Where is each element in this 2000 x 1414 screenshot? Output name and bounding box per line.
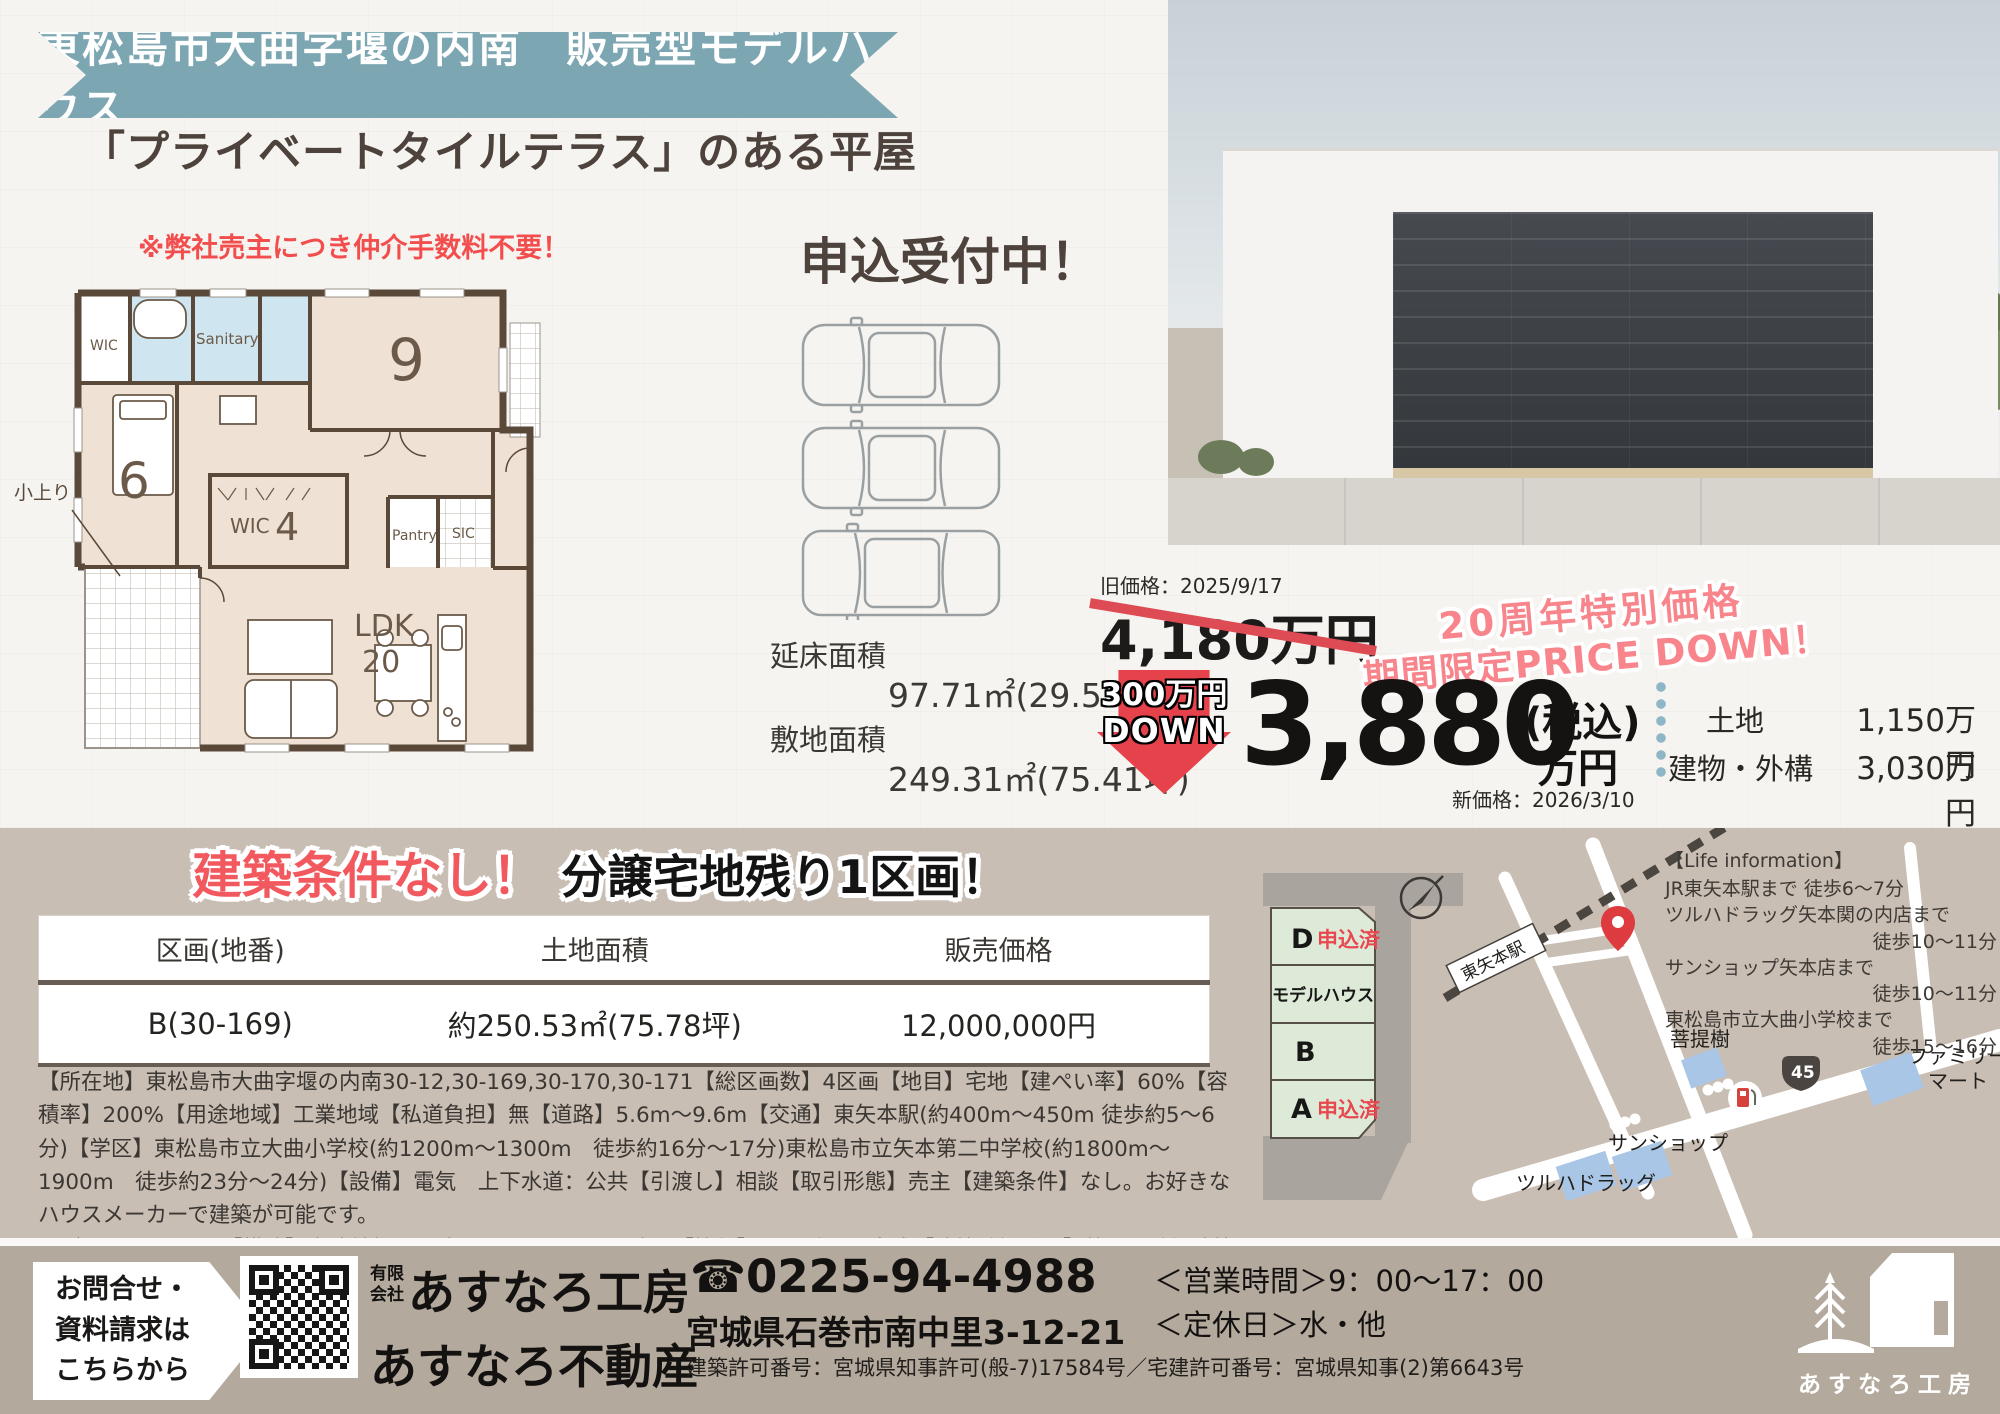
new-price-date: 新価格：2026/3/10 [1452,784,1635,813]
cta-line: 資料請求は [55,1311,265,1352]
poi-tsuruha-label: ツルハドラッグ [1516,1171,1656,1195]
life-item-place: サンショップ矢本店まで [1665,955,1997,981]
price-down-text: 300万円 DOWN [1086,678,1242,750]
property-details-paragraph: 【所在地】東松島市大曲字堰の内南30-12,30-169,30-170,30-1… [38,1066,1238,1233]
logo-text: あすなろ工房 [1790,1365,1986,1399]
life-item-place: ツルハドラッグ矢本関の内店まで [1665,902,1997,928]
life-item-time: 徒歩10〜11分 [1665,981,1997,1007]
no-building-conditions-text: 建築条件なし！ [192,847,542,905]
lot-a-label: A [1291,1094,1312,1125]
table-row: B(30-169) 約250.53㎡(75.78坪) 12,000,000円 [39,983,1210,1066]
broker-fee-note: ※弊社売主につき仲介手数料不要！ [138,226,569,265]
photo-shrub [1238,448,1274,476]
room-label-sic: SIC [452,526,475,542]
qr-finder [319,1265,349,1295]
lot-d-label: D [1291,924,1313,955]
poi-familymart-label-2: マート [1928,1069,1988,1093]
catchcopy-heading: 「プライベートタイルテラス」のある平屋 [82,118,917,180]
breakdown-land-label: 土地 [1706,698,1764,740]
price-down-word: DOWN [1086,713,1242,750]
parking-cars [795,315,1010,620]
lot-table: 区画(地番) 土地面積 販売価格 B(30-169) 約250.53㎡(75.7… [38,915,1210,1067]
company-address: 宮城県石巻市南中里3-12-21 [686,1306,1125,1354]
business-hours: ＜営業時間＞9：00〜17：00 [1154,1258,1544,1300]
room-label-wic1: WIC [90,338,118,354]
room-label-pantry: Pantry [392,528,437,544]
photo-shrub [1198,440,1244,474]
footer-separator [0,1238,2000,1246]
accepting-applications-text: 申込受付中！ [800,222,1100,294]
qr-finder [249,1339,279,1369]
house-photo [1168,0,2000,545]
car-icon [803,421,999,515]
life-information-title: 【Life information】 [1665,848,1997,874]
lot-area-cell: 約250.53㎡(75.78坪) [402,983,788,1066]
lot-subdivision-diagram: D 申込済 モデルハウス B A 申込済 [1253,868,1468,1213]
lot-b-label: B [1295,1037,1316,1068]
lot-table-header: 区画(地番) [39,916,402,983]
logo-house-icon [1790,1245,1986,1355]
company-type: 有限 会社 [370,1264,404,1307]
room-label-ldk-size: 20 [362,645,400,680]
room-label-bedroom6: 6 [118,452,150,510]
life-item-place: JR東矢本駅まで 徒歩6〜7分 [1665,876,1997,902]
svg-text:45: 45 [1791,1063,1815,1083]
floor-plan: WIC Sanitary 9 6 WIC 4 Pantry SIC LDK 20 [70,288,550,758]
phone-number: ☎0225-94-4988 [690,1250,1097,1303]
room-label-wic2-size: 4 [275,505,299,549]
car-icon [803,318,999,412]
license-numbers: 建築許可番号：宮城県知事許可(般-7)17584号／宅建許可番号：宮城県知事(2… [686,1352,1524,1382]
logo-tree-icon [1816,1285,1844,1345]
koagari-label: 小上り [14,478,71,505]
holiday-info: ＜定休日＞水・他 [1154,1302,1386,1344]
lot-id-cell: B(30-169) [39,983,402,1066]
lot-table-header: 土地面積 [402,916,788,983]
room-label-bedroom9: 9 [388,326,425,394]
remaining-lot-text: 分譲宅地残り1区画！ [561,850,1007,904]
poi-sunshop-label: サンショップ [1608,1131,1728,1155]
company-name-koubou: あすなろ工房 [408,1254,690,1323]
breakdown-building-value: 3,030万円 [1826,743,1976,833]
life-information: 【Life information】 JR東矢本駅まで 徒歩6〜7分 ツルハドラ… [1665,848,1997,1060]
breakdown-building-label: 建物・外構 [1668,746,1813,788]
car-icon [803,524,999,620]
life-item-time: 徒歩15〜16分 [1665,1034,1997,1060]
station-label: 東矢本駅 [1446,923,1545,992]
old-price-date: 旧価格：2025/9/17 [1100,570,1283,599]
qr-finder [249,1265,279,1295]
gas-station-icon [1728,1081,1762,1115]
lot-price-cell: 12,000,000円 [788,983,1210,1066]
life-item-place: 東松島市立大曲小学校まで [1665,1007,1997,1033]
lot-table-header: 販売価格 [788,916,1210,983]
company-logo: あすなろ工房 [1790,1245,1986,1399]
dotted-divider [1655,680,1667,784]
lot-modelhouse-label: モデルハウス [1272,985,1374,1006]
flyer-page: 東松島市大曲字堰の内南 販売型モデルハウス 「プライベートタイルテラス」のある平… [0,0,2000,1414]
title-ribbon: 東松島市大曲字堰の内南 販売型モデルハウス [38,32,898,118]
room-label-ldk: LDK [354,609,415,644]
photo-dark-tile-facade [1393,212,1873,480]
qr-code [240,1256,358,1378]
company-name-fudousan: あすなろ不動産 [370,1328,699,1397]
lot-d-status: 申込済 [1317,928,1381,952]
room-label-sanitary: Sanitary [196,330,259,348]
lot-table-header-row: 区画(地番) 土地面積 販売価格 [39,916,1210,983]
lots-section-title: 建築条件なし！ 分譲宅地残り1区画！ [192,836,1007,908]
photo-driveway [1168,478,2000,545]
lot-a-status: 申込済 [1317,1098,1381,1122]
room-label-wic2: WIC [230,514,270,538]
price-down-amount: 300万円 [1086,678,1242,713]
life-item-time: 徒歩10〜11分 [1665,929,1997,955]
